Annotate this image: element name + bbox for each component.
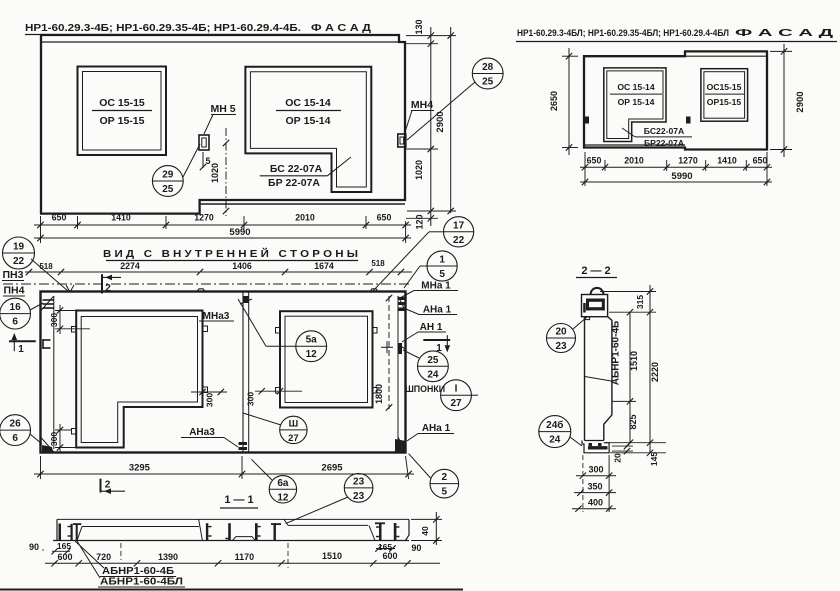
svg-text:2274: 2274 [120, 261, 140, 271]
svg-text:600: 600 [57, 552, 72, 562]
svg-text:12: 12 [306, 349, 318, 360]
svg-text:1: 1 [439, 255, 445, 266]
svg-text:АН 1: АН 1 [420, 322, 443, 333]
svg-text:1390: 1390 [158, 552, 178, 562]
svg-text:2: 2 [105, 480, 111, 491]
svg-text:650: 650 [52, 213, 67, 223]
svg-text:1170: 1170 [235, 552, 255, 562]
svg-text:300: 300 [246, 392, 256, 406]
svg-text:2010: 2010 [295, 213, 315, 223]
svg-text:20: 20 [555, 327, 567, 338]
svg-text:БС22-07А: БС22-07А [644, 126, 684, 136]
svg-text:17: 17 [453, 220, 465, 231]
svg-text:1270: 1270 [678, 156, 698, 166]
svg-text:130: 130 [414, 19, 424, 34]
svg-text:300: 300 [49, 313, 59, 327]
svg-text:2010: 2010 [624, 156, 644, 166]
svg-text:5: 5 [439, 269, 445, 280]
svg-text:МНа 1: МНа 1 [421, 281, 451, 292]
svg-text:1410: 1410 [717, 156, 737, 166]
svg-text:1800: 1800 [374, 384, 384, 404]
svg-text:1510: 1510 [629, 351, 639, 371]
svg-text:В И Д С В Н У Т Р Е Н Н Е: В И Д С В Н У Т Р Е Н Н Е Й С Т О Р О Н … [103, 247, 358, 260]
svg-text:2220: 2220 [650, 362, 660, 382]
svg-text:2650: 2650 [549, 91, 559, 111]
svg-text:23: 23 [353, 476, 365, 487]
svg-text:120: 120 [415, 214, 425, 229]
svg-text:ОС 15-14: ОС 15-14 [285, 97, 331, 109]
svg-text:19: 19 [13, 242, 25, 253]
svg-text:315: 315 [635, 295, 645, 309]
svg-text:МНа3: МНа3 [203, 311, 230, 322]
svg-text:ПН4: ПН4 [4, 285, 25, 297]
svg-text:АБНР1-60-4Б: АБНР1-60-4Б [611, 321, 622, 385]
svg-text:НР1-60.29.3-4Б; НР1-60.29.35-4: НР1-60.29.3-4Б; НР1-60.29.35-4Б; НР1-60.… [25, 23, 301, 34]
svg-text:1270: 1270 [194, 213, 214, 223]
svg-text:5990: 5990 [671, 171, 692, 182]
svg-text:1020: 1020 [414, 160, 424, 180]
svg-text:29: 29 [162, 170, 174, 181]
svg-text:I: I [455, 384, 458, 395]
svg-text:3295: 3295 [129, 463, 151, 474]
svg-text:1410: 1410 [111, 213, 131, 223]
svg-text:2: 2 [105, 283, 111, 294]
svg-text:28: 28 [482, 62, 494, 73]
svg-text:Ф А С А Д: Ф А С А Д [311, 22, 372, 34]
svg-text:40: 40 [420, 526, 430, 536]
svg-text:БР22-07А: БР22-07А [644, 138, 684, 148]
svg-text:БР 22-07А: БР 22-07А [268, 177, 320, 189]
svg-text:300: 300 [588, 465, 603, 475]
svg-text:АНа 1: АНа 1 [423, 305, 452, 316]
svg-text:ОР 15-15: ОР 15-15 [100, 115, 145, 127]
svg-text:5а: 5а [306, 335, 318, 346]
svg-text:1510: 1510 [322, 551, 342, 561]
svg-text:ОР 15-14: ОР 15-14 [618, 97, 655, 107]
svg-text:600: 600 [382, 551, 397, 561]
svg-text:ОС15-15: ОС15-15 [707, 82, 742, 92]
svg-text:АБНР1-60-4БЛ: АБНР1-60-4БЛ [100, 577, 183, 588]
svg-text:518: 518 [371, 259, 385, 268]
svg-text:1 — 1: 1 — 1 [224, 494, 253, 506]
svg-text:2 — 2: 2 — 2 [581, 265, 610, 277]
svg-text:1406: 1406 [232, 261, 252, 271]
svg-text:ОР15-15: ОР15-15 [707, 97, 742, 107]
svg-text:400: 400 [588, 498, 603, 508]
svg-text:90: 90 [411, 543, 421, 553]
svg-text:ОС 15-15: ОС 15-15 [99, 97, 145, 109]
svg-text:МН 5: МН 5 [210, 103, 235, 115]
svg-text:24: 24 [427, 369, 439, 380]
svg-text:25: 25 [162, 184, 174, 195]
svg-text:2: 2 [442, 472, 448, 483]
svg-text:300: 300 [49, 432, 59, 446]
svg-text:АНа3: АНа3 [189, 427, 215, 438]
svg-text:БС 22-07А: БС 22-07А [270, 163, 323, 175]
svg-text:350: 350 [587, 482, 602, 492]
svg-text:НР1-60.29.3-4БЛ; НР1-60.29.35-: НР1-60.29.3-4БЛ; НР1-60.29.35-4БЛ; НР1-6… [517, 28, 729, 38]
svg-text:ШПОНКИ: ШПОНКИ [405, 384, 445, 394]
svg-text:25: 25 [427, 355, 439, 366]
svg-text:5: 5 [442, 487, 448, 498]
svg-text:АНа 1: АНа 1 [422, 423, 451, 434]
svg-text:650: 650 [377, 213, 392, 223]
svg-text:ОР 15-14: ОР 15-14 [286, 115, 331, 127]
svg-text:26: 26 [10, 419, 22, 430]
svg-text:6а: 6а [277, 478, 289, 489]
svg-text:ОС 15-14: ОС 15-14 [617, 82, 654, 92]
svg-text:27: 27 [288, 433, 299, 444]
svg-text:720: 720 [96, 552, 111, 562]
svg-text:16: 16 [10, 302, 22, 313]
svg-text:МН4: МН4 [411, 99, 433, 111]
svg-text:300: 300 [205, 393, 215, 407]
svg-text:1020: 1020 [210, 163, 220, 183]
svg-text:6: 6 [12, 317, 18, 328]
svg-text:22: 22 [453, 235, 465, 246]
svg-text:825: 825 [628, 414, 638, 429]
svg-text:23: 23 [555, 341, 567, 352]
svg-text:Ф А С А Д: Ф А С А Д [735, 28, 834, 39]
svg-text:20: 20 [613, 453, 623, 463]
svg-text:145: 145 [649, 452, 659, 466]
svg-text:650: 650 [753, 156, 768, 166]
svg-text:25: 25 [482, 77, 494, 88]
svg-text:5990: 5990 [229, 227, 250, 238]
svg-text:12: 12 [277, 492, 289, 503]
svg-text:2900: 2900 [435, 111, 446, 132]
svg-text:24: 24 [549, 435, 561, 446]
svg-text:6: 6 [12, 433, 18, 444]
svg-text:1674: 1674 [314, 261, 334, 271]
svg-text:90: 90 [29, 542, 39, 552]
svg-text:650: 650 [587, 156, 602, 166]
svg-text:2900: 2900 [795, 91, 806, 112]
svg-text:518: 518 [39, 262, 53, 271]
svg-text:27: 27 [450, 398, 462, 409]
svg-text:Ш: Ш [289, 418, 299, 429]
svg-text:22: 22 [13, 256, 25, 267]
svg-text:24б: 24б [546, 419, 563, 431]
svg-text:23: 23 [353, 491, 365, 502]
svg-text:1: 1 [18, 344, 24, 355]
svg-text:2695: 2695 [321, 463, 343, 474]
svg-text:ПН3: ПН3 [3, 269, 24, 281]
svg-text:АБНР1-60-4Б: АБНР1-60-4Б [102, 566, 174, 577]
